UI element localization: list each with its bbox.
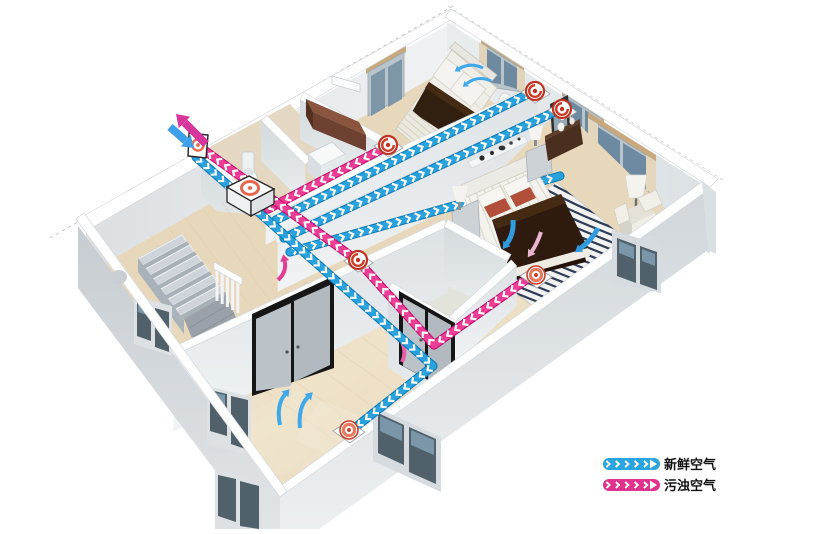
svg-text:污浊空气: 污浊空气 xyxy=(664,478,716,493)
svg-text:新鲜空气: 新鲜空气 xyxy=(664,457,716,472)
